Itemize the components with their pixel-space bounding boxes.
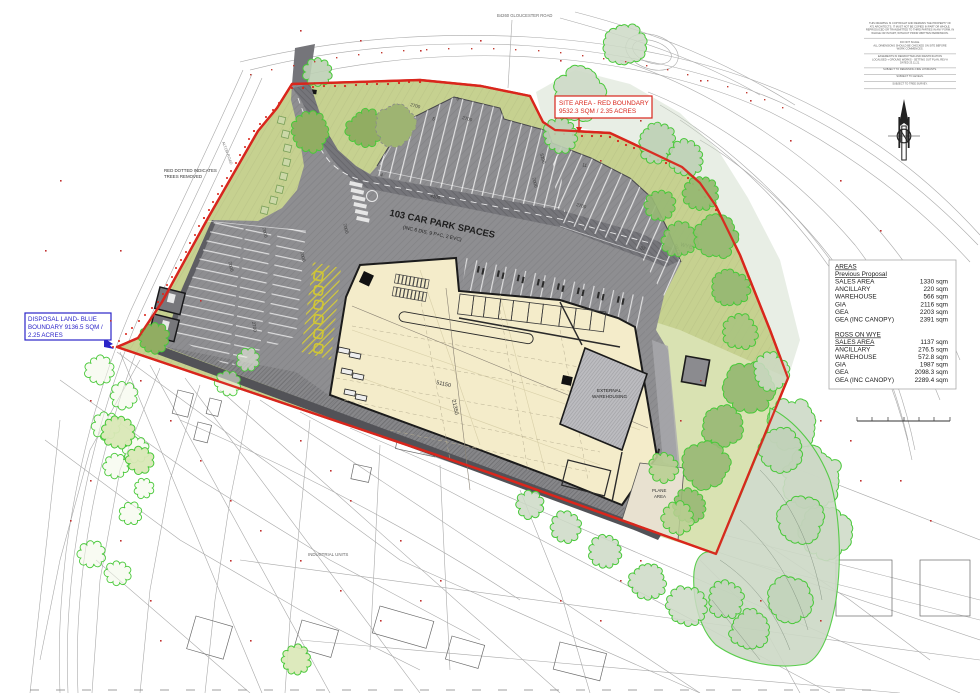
svg-text:WAREHOUSE: WAREHOUSE — [835, 354, 877, 361]
svg-text:ROSS ON WYE: ROSS ON WYE — [835, 332, 881, 339]
svg-text:1330 sqm: 1330 sqm — [920, 279, 948, 286]
svg-text:2116 sqm: 2116 sqm — [920, 301, 948, 308]
svg-text:1987 sqm: 1987 sqm — [920, 362, 948, 369]
svg-text:RED DOTTED INDICATES: RED DOTTED INDICATES — [164, 168, 217, 173]
svg-text:2203 sqm: 2203 sqm — [920, 309, 948, 316]
svg-text:1137 sqm: 1137 sqm — [920, 339, 948, 346]
svg-text:DISPOSAL LAND- BLUE: DISPOSAL LAND- BLUE — [28, 316, 97, 323]
svg-text:SITE AREA - RED BOUNDARY: SITE AREA - RED BOUNDARY — [559, 100, 649, 107]
svg-text:EXTERNAL: EXTERNAL — [597, 388, 622, 393]
svg-text:AREAS: AREAS — [835, 264, 857, 271]
svg-text:GEA: GEA — [835, 309, 849, 316]
svg-text:BOUNDARY 9136.5 SQM /: BOUNDARY 9136.5 SQM / — [28, 324, 103, 331]
svg-text:ANCILLARY: ANCILLARY — [835, 347, 871, 354]
svg-text:SALES AREA: SALES AREA — [835, 279, 875, 286]
svg-text:GEA: GEA — [835, 369, 849, 376]
svg-text:ANCILLARY: ANCILLARY — [835, 286, 871, 293]
svg-text:WORK COMMENCES.: WORK COMMENCES. — [897, 47, 924, 51]
svg-text:GEA (INC CANOPY): GEA (INC CANOPY) — [835, 377, 894, 384]
svg-text:2391 sqm: 2391 sqm — [920, 316, 948, 323]
svg-text:220 sqm: 220 sqm — [923, 286, 948, 293]
svg-text:WHOLE OR IN PART, WITHOUT PRIO: WHOLE OR IN PART, WITHOUT PRIOR WRITTEN … — [871, 31, 949, 35]
svg-text:PLANE: PLANE — [652, 488, 666, 493]
svg-text:WAREHOUSE: WAREHOUSE — [835, 294, 877, 301]
svg-text:276.5 sqm: 276.5 sqm — [918, 347, 948, 354]
svg-text:B4260 GLOUCESTER ROAD: B4260 GLOUCESTER ROAD — [497, 13, 552, 18]
svg-text:GIA: GIA — [835, 301, 847, 308]
svg-text:2289.4 sqm: 2289.4 sqm — [915, 377, 948, 384]
svg-text:SUBJECT TO TREE SURVEY.: SUBJECT TO TREE SURVEY. — [892, 82, 928, 86]
svg-text:566 sqm: 566 sqm — [923, 294, 948, 301]
svg-text:INDUSTRIAL UNITS: INDUSTRIAL UNITS — [308, 552, 348, 557]
svg-text:2.25 ACRES: 2.25 ACRES — [28, 332, 63, 339]
svg-text:AREA: AREA — [654, 494, 666, 499]
svg-text:Previous Proposal: Previous Proposal — [835, 271, 887, 278]
svg-text:GEA (INC CANOPY): GEA (INC CANOPY) — [835, 316, 894, 323]
svg-text:TREES REMOVED: TREES REMOVED — [164, 174, 202, 179]
svg-text:9532.3 SQM / 2.35 ACRES: 9532.3 SQM / 2.35 ACRES — [559, 108, 636, 115]
svg-text:SUBJECT TO LEVELS.: SUBJECT TO LEVELS. — [896, 74, 924, 78]
svg-text:SALES AREA: SALES AREA — [835, 339, 875, 346]
svg-text:DATED 23.11.21.: DATED 23.11.21. — [900, 61, 920, 65]
svg-text:2098.3 sqm: 2098.3 sqm — [915, 369, 948, 376]
svg-text:572.8 sqm: 572.8 sqm — [918, 354, 948, 361]
svg-text:WAREHOUSING: WAREHOUSING — [592, 394, 627, 399]
svg-text:GIA: GIA — [835, 362, 847, 369]
svg-text:SUBJECT TO REMAINING FIRE HYDR: SUBJECT TO REMAINING FIRE HYDRANTS. — [883, 67, 937, 71]
